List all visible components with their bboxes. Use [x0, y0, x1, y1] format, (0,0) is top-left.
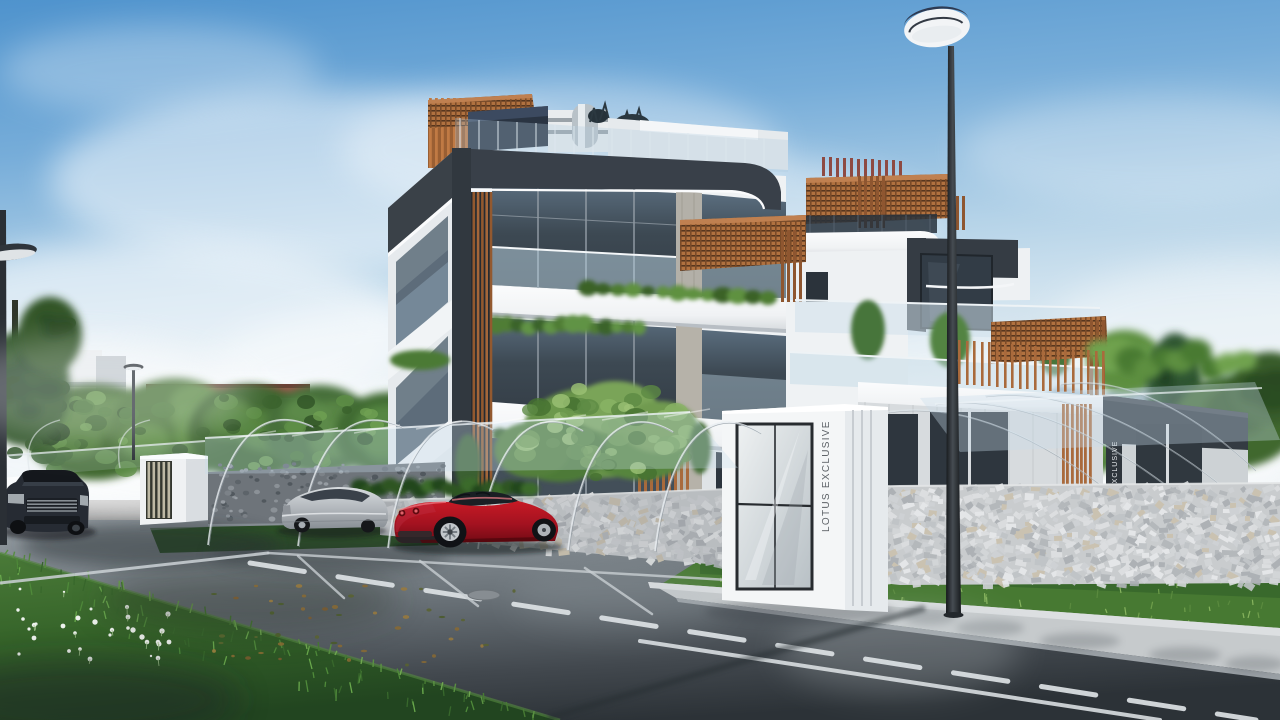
svg-text:LOTUS EXCLUSIVE: LOTUS EXCLUSIVE [821, 420, 832, 532]
svg-text:EXCLUSIVE: EXCLUSIVE [1112, 441, 1119, 489]
